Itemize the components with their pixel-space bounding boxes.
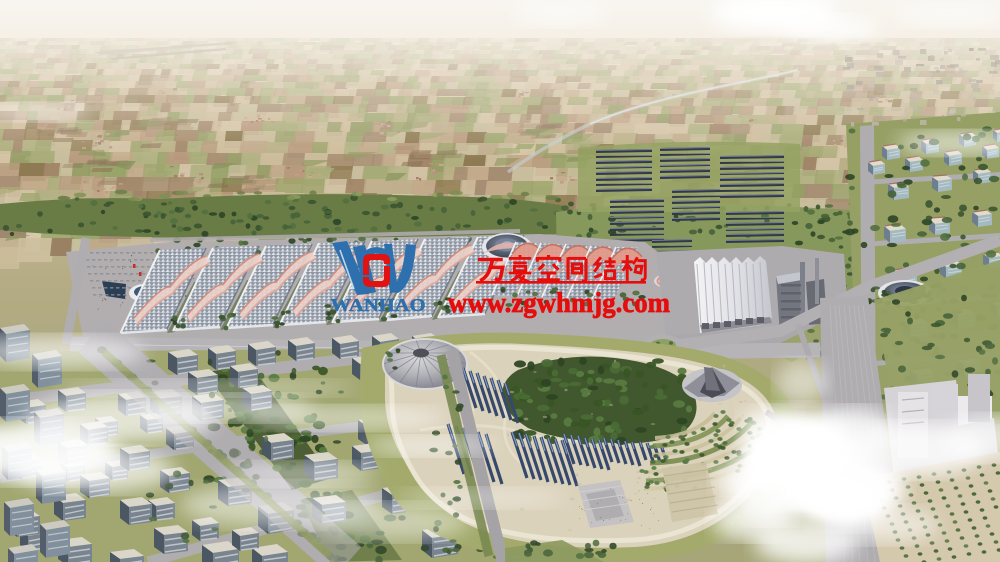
svg-text:www.zgwhmjg.com: www.zgwhmjg.com bbox=[448, 287, 670, 319]
svg-text:WANHAO: WANHAO bbox=[331, 295, 426, 315]
